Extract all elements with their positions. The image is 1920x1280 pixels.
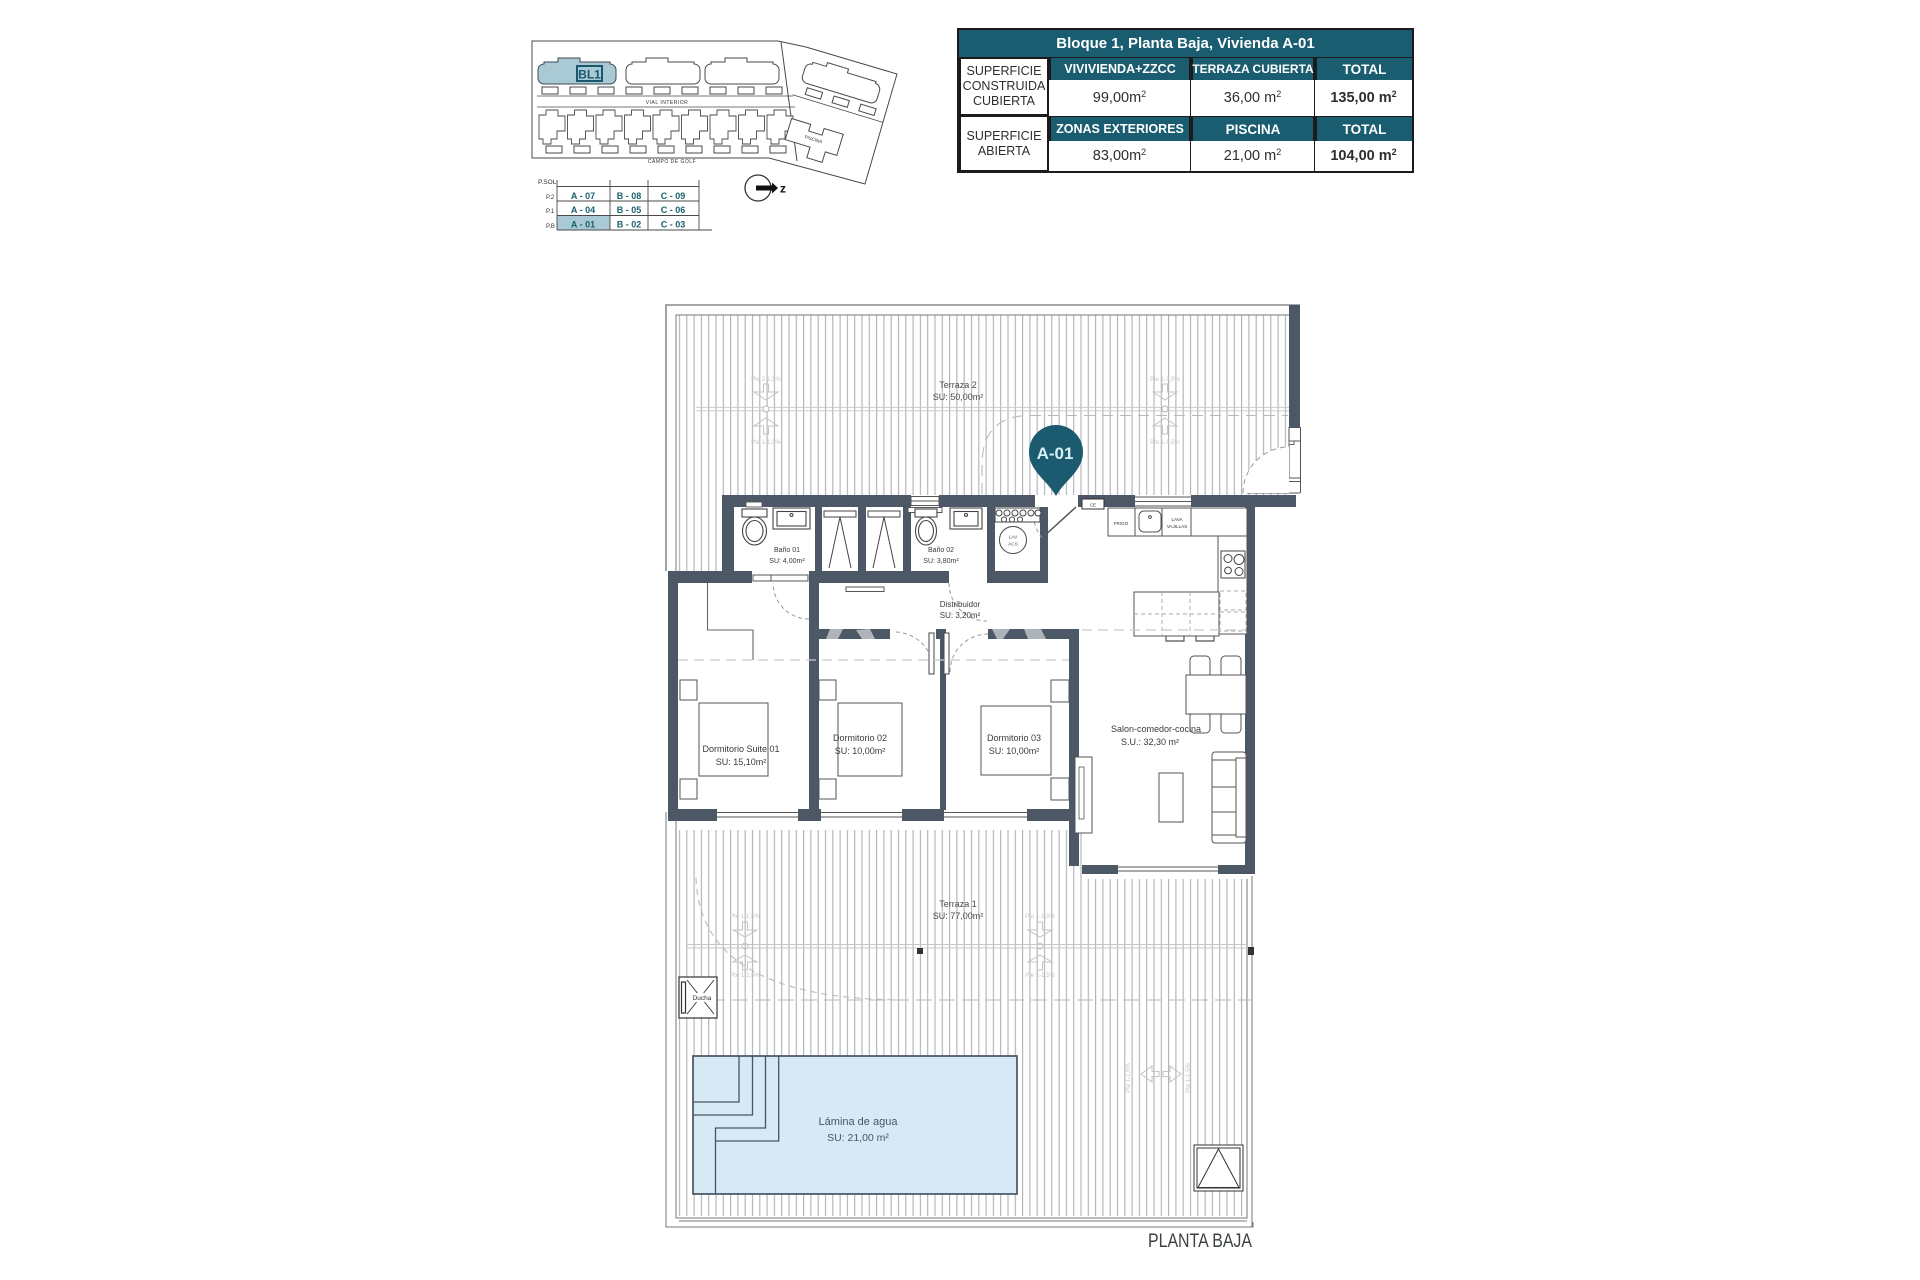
svg-text:Pte 1-1,5%: Pte 1-1,5% <box>751 440 781 446</box>
svg-text:Pte 1-1,5%: Pte 1-1,5% <box>1025 973 1055 979</box>
svg-text:CE: CE <box>1090 503 1096 508</box>
svg-text:Terraza 2: Terraza 2 <box>939 380 977 390</box>
svg-text:Pte 1-1,5%: Pte 1-1,5% <box>730 973 760 979</box>
svg-text:Baño 01: Baño 01 <box>774 547 800 554</box>
svg-text:SU: 3,80m²: SU: 3,80m² <box>923 558 959 565</box>
svg-text:Pte 1-1,5%: Pte 1-1,5% <box>1150 440 1180 446</box>
svg-text:SU: 4,00m²: SU: 4,00m² <box>769 558 805 565</box>
svg-text:B - 02: B - 02 <box>617 220 642 230</box>
svg-text:Dormitorio 02: Dormitorio 02 <box>833 733 887 743</box>
svg-text:BL1: BL1 <box>578 68 601 82</box>
svg-text:SU: 15,10m²: SU: 15,10m² <box>716 757 767 767</box>
svg-text:Pte 1-1,5%: Pte 1-1,5% <box>730 914 760 920</box>
svg-text:P.2: P.2 <box>546 195 555 201</box>
svg-text:P.B: P.B <box>546 224 555 230</box>
svg-text:ACS: ACS <box>1008 542 1018 548</box>
svg-text:SU: 50,00m²: SU: 50,00m² <box>933 392 984 402</box>
svg-text:Pte 2-1,5%: Pte 2-1,5% <box>751 377 781 383</box>
svg-text:Distribuidor: Distribuidor <box>940 600 981 609</box>
svg-text:CAMPO DE GOLF: CAMPO DE GOLF <box>648 159 696 165</box>
svg-text:B - 08: B - 08 <box>617 191 642 201</box>
svg-text:Pte 1-1,5%: Pte 1-1,5% <box>1186 1062 1192 1092</box>
svg-text:C - 06: C - 06 <box>661 205 686 215</box>
svg-text:z: z <box>780 182 786 196</box>
svg-text:Pte 1-1,5%: Pte 1-1,5% <box>1126 1062 1132 1092</box>
svg-text:A - 01: A - 01 <box>571 220 595 230</box>
svg-text:S.U.: 32,30 m²: S.U.: 32,30 m² <box>1121 737 1179 747</box>
svg-text:PLANTA BAJA: PLANTA BAJA <box>1148 1231 1252 1252</box>
svg-text:Pte 1-1,5%: Pte 1-1,5% <box>1025 914 1055 920</box>
svg-text:SU: 10,00m²: SU: 10,00m² <box>989 746 1040 756</box>
svg-text:A - 04: A - 04 <box>571 205 595 215</box>
svg-text:VIAL INTERIOR: VIAL INTERIOR <box>646 100 688 106</box>
svg-text:LAVA: LAVA <box>1171 517 1183 522</box>
svg-text:FRIGO: FRIGO <box>1114 521 1129 526</box>
svg-text:VAJILLAS: VAJILLAS <box>1167 524 1188 529</box>
svg-text:LAV: LAV <box>1009 535 1019 541</box>
svg-text:P.SOL: P.SOL <box>538 179 557 186</box>
svg-text:SU: 10,00m²: SU: 10,00m² <box>835 746 886 756</box>
svg-text:SU: 3,20m²: SU: 3,20m² <box>940 611 981 620</box>
svg-text:B - 05: B - 05 <box>617 205 642 215</box>
svg-text:C - 03: C - 03 <box>661 220 686 230</box>
svg-text:SU: 77,00m²: SU: 77,00m² <box>933 911 984 921</box>
svg-text:Ducha: Ducha <box>693 995 712 1002</box>
svg-text:Salon-comedor-cocina: Salon-comedor-cocina <box>1111 724 1201 734</box>
svg-text:Dormitorio 03: Dormitorio 03 <box>987 733 1041 743</box>
svg-text:SU: 21,00 m²: SU: 21,00 m² <box>827 1132 889 1144</box>
svg-text:Baño 02: Baño 02 <box>928 547 954 554</box>
svg-text:Terraza 1: Terraza 1 <box>939 899 977 909</box>
svg-text:A-01: A-01 <box>1037 444 1074 463</box>
svg-text:Dormitorio Suite 01: Dormitorio Suite 01 <box>702 744 779 754</box>
svg-text:A - 07: A - 07 <box>571 191 595 201</box>
svg-text:P.1: P.1 <box>546 209 555 215</box>
svg-text:Lámina de agua: Lámina de agua <box>819 1116 899 1128</box>
svg-text:Pte 1-1,5%: Pte 1-1,5% <box>1150 377 1180 383</box>
svg-text:C - 09: C - 09 <box>661 191 686 201</box>
